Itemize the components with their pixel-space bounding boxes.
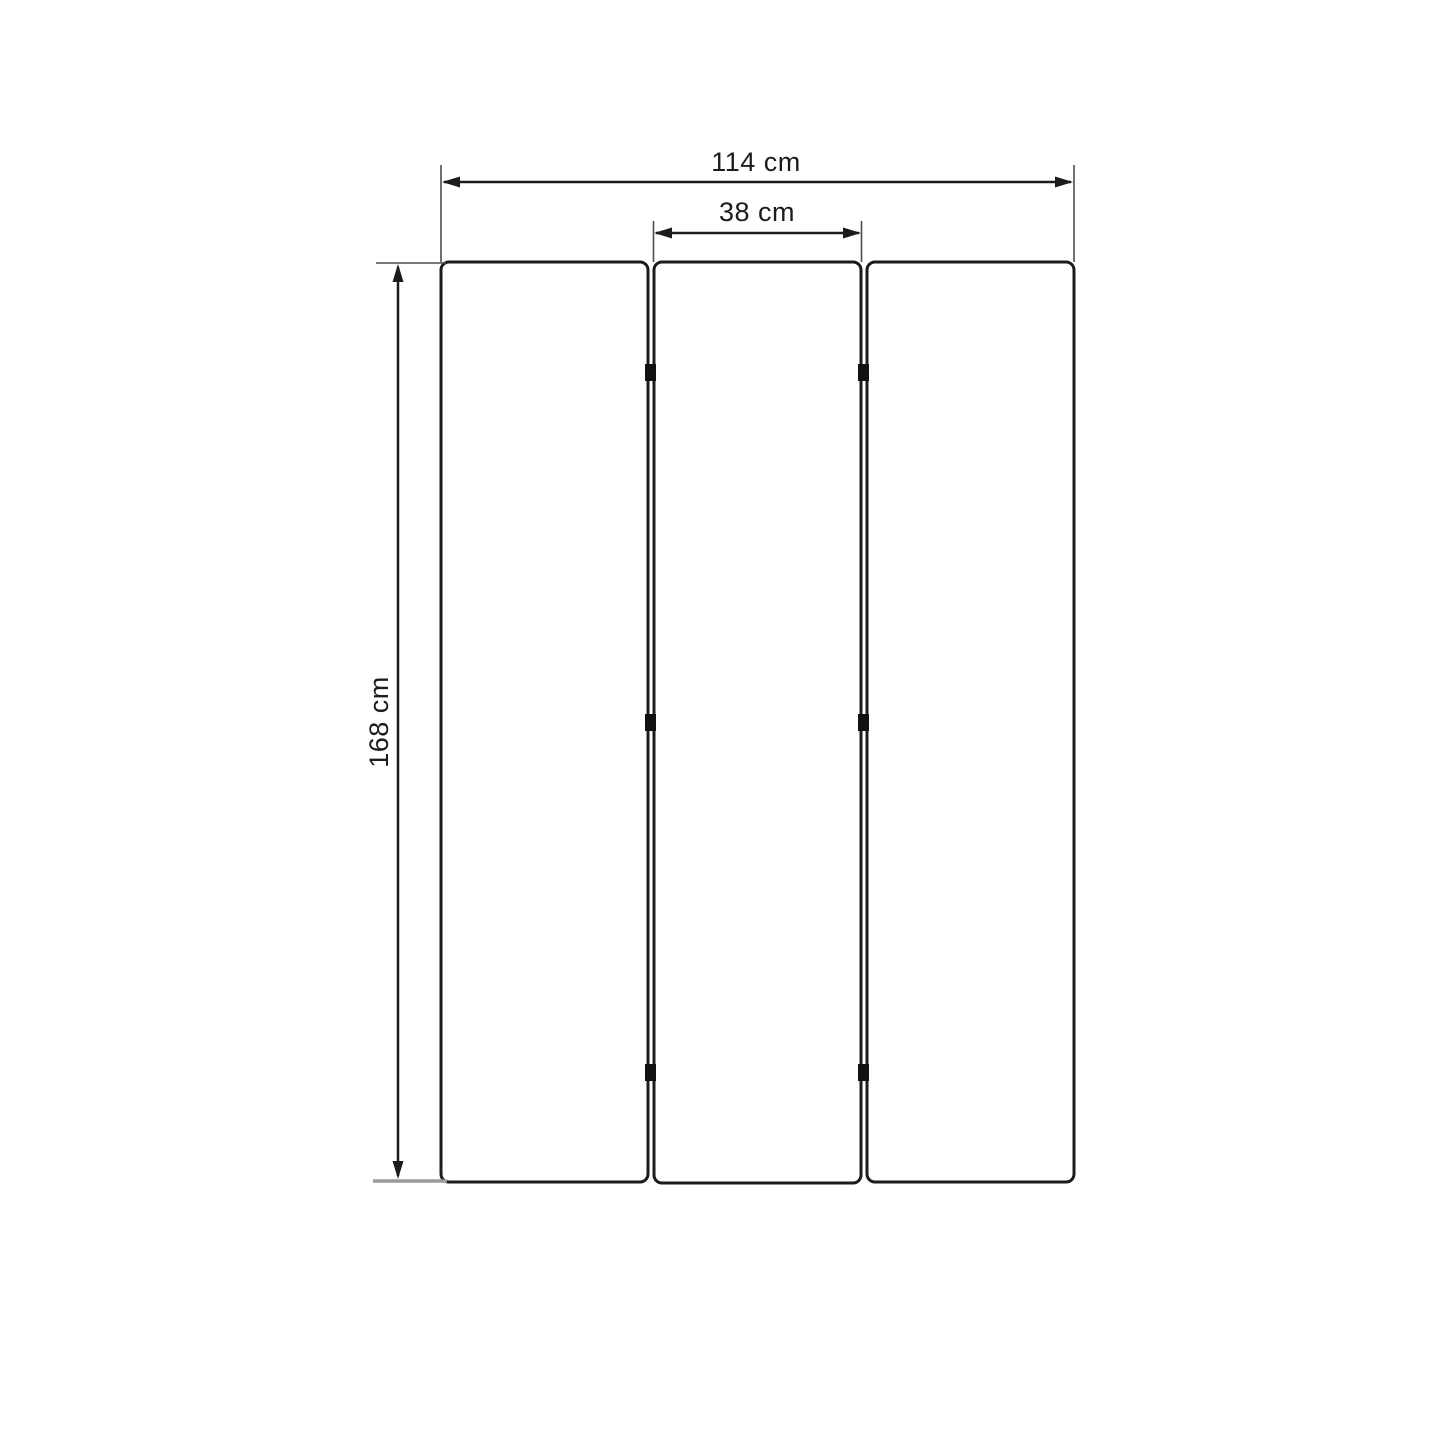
arrow-up-icon xyxy=(393,264,404,282)
arrow-right-icon xyxy=(843,228,861,239)
hinge-middle-right-icon xyxy=(858,714,869,731)
dimension-panel-width: 38 cm xyxy=(654,197,861,239)
dim-label-height: 168 cm xyxy=(364,676,394,768)
arrow-left-icon xyxy=(654,228,672,239)
dimension-total-width: 114 cm xyxy=(442,147,1073,188)
dim-label-total-width: 114 cm xyxy=(711,147,801,177)
dim-label-panel-width: 38 cm xyxy=(719,197,795,227)
hinge-bottom-left-icon xyxy=(645,1064,656,1081)
arrow-right-icon xyxy=(1055,177,1073,188)
panels xyxy=(441,262,1074,1183)
hinge-bottom-right-icon xyxy=(858,1064,869,1081)
folding-screen-dimension-diagram: 114 cm 38 cm 168 cm xyxy=(0,0,1445,1445)
panel-right xyxy=(867,262,1074,1182)
diagram-canvas: 114 cm 38 cm 168 cm xyxy=(0,0,1445,1445)
dimension-height: 168 cm xyxy=(364,264,404,1179)
hinge-middle-left-icon xyxy=(645,714,656,731)
panel-middle xyxy=(654,262,861,1183)
arrow-down-icon xyxy=(393,1161,404,1179)
hinge-top-right-icon xyxy=(858,364,869,381)
panel-left xyxy=(441,262,648,1182)
arrow-left-icon xyxy=(442,177,460,188)
hinge-top-left-icon xyxy=(645,364,656,381)
